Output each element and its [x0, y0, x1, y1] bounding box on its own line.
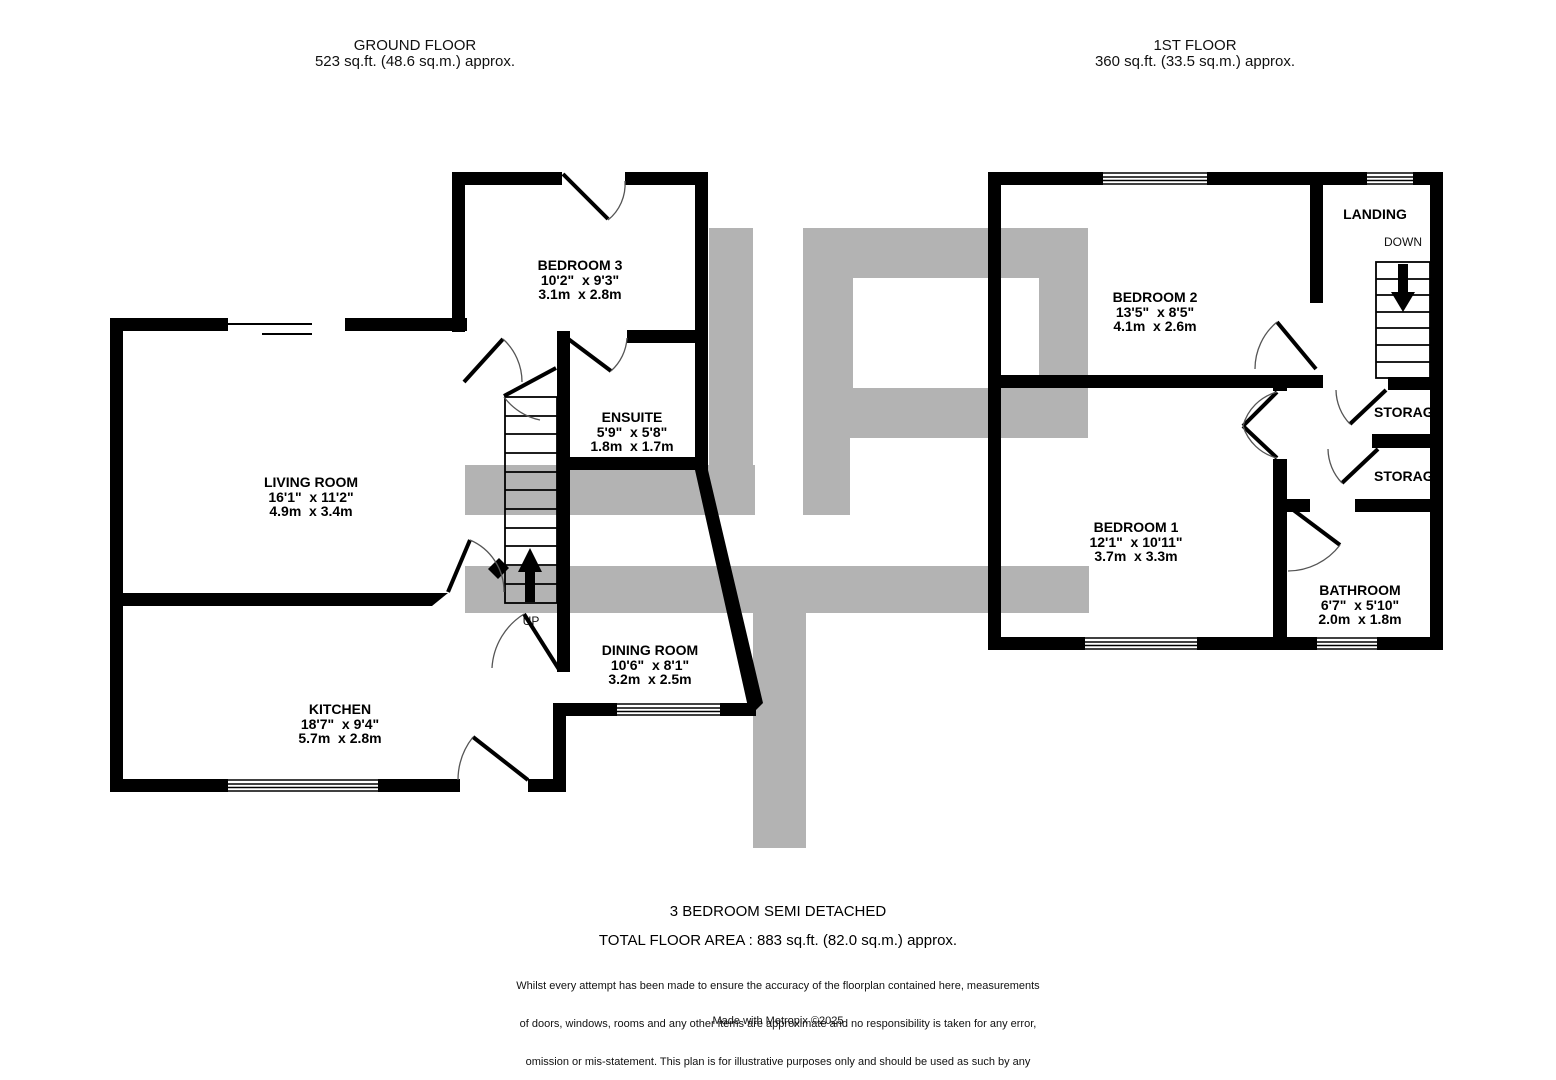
- room-label-dining-room: DINING ROOM10'6" x 8'1"3.2m x 2.5m: [602, 614, 698, 716]
- room-label-living-room: LIVING ROOM16'1" x 11'2"4.9m x 3.4m: [264, 446, 358, 548]
- total-floor-area: TOTAL FLOOR AREA : 883 sq.ft. (82.0 sq.m…: [599, 932, 957, 949]
- ground-floor-title: GROUND FLOOR: [315, 38, 515, 54]
- room-label-bedroom-3: BEDROOM 310'2" x 9'3"3.1m x 2.8m: [538, 229, 623, 331]
- metropix-credit: Made with Metropix ©2025: [712, 1015, 843, 1027]
- first-floor-header: 1ST FLOOR 360 sq.ft. (33.5 sq.m.) approx…: [1095, 38, 1295, 70]
- ground-floor-header: GROUND FLOOR 523 sq.ft. (48.6 sq.m.) app…: [315, 38, 515, 70]
- ground-floor-area: 523 sq.ft. (48.6 sq.m.) approx.: [315, 54, 515, 70]
- storage-label-2: STORAGE: [1374, 468, 1431, 484]
- stairs-down-label: DOWN: [1384, 236, 1422, 248]
- room-label-bedroom-2: BEDROOM 213'5" x 8'5"4.1m x 2.6m: [1113, 261, 1198, 363]
- room-label-kitchen: KITCHEN18'7" x 9'4"5.7m x 2.8m: [298, 673, 381, 775]
- property-title: 3 BEDROOM SEMI DETACHED: [670, 903, 886, 920]
- labels-layer: GROUND FLOOR 523 sq.ft. (48.6 sq.m.) app…: [0, 0, 1556, 1080]
- room-label-bathroom: BATHROOM6'7" x 5'10"2.0m x 1.8m: [1318, 554, 1401, 656]
- stairs-up-label: UP: [523, 615, 540, 627]
- storage-label-1: STORAGE: [1374, 404, 1431, 420]
- landing-label: LANDING: [1343, 206, 1407, 222]
- room-label-ensuite: ENSUITE5'9" x 5'8"1.8m x 1.7m: [590, 381, 673, 483]
- room-label-bedroom-1: BEDROOM 112'1" x 10'11"3.7m x 3.3m: [1089, 491, 1182, 593]
- floorplan-page: GROUND FLOOR 523 sq.ft. (48.6 sq.m.) app…: [0, 0, 1556, 1080]
- first-floor-area: 360 sq.ft. (33.5 sq.m.) approx.: [1095, 54, 1295, 70]
- first-floor-title: 1ST FLOOR: [1095, 38, 1295, 54]
